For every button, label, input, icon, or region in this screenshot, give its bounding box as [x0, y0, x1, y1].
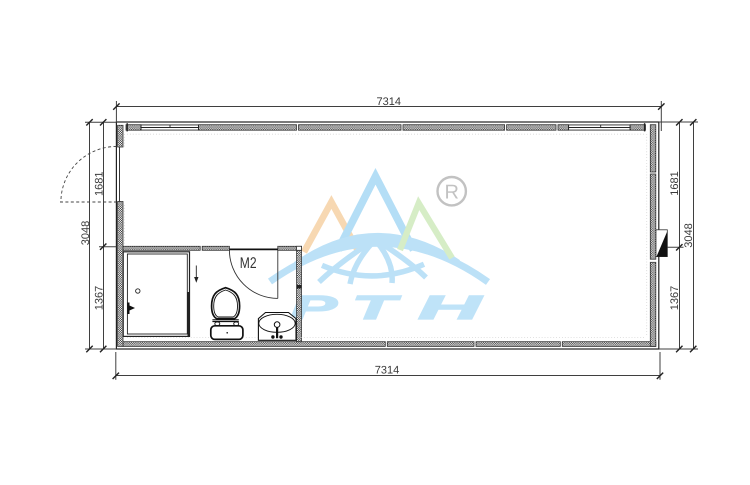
svg-text:1681: 1681 — [94, 172, 106, 196]
svg-text:3048: 3048 — [683, 223, 695, 247]
svg-text:R: R — [444, 181, 458, 203]
svg-text:7314: 7314 — [375, 365, 399, 377]
svg-text:7314: 7314 — [377, 96, 401, 108]
svg-text:1367: 1367 — [94, 286, 106, 310]
svg-text:T: T — [351, 290, 400, 327]
svg-text:H: H — [418, 290, 483, 327]
svg-text:3048: 3048 — [80, 221, 92, 245]
svg-text:M2: M2 — [240, 255, 257, 272]
svg-text:1367: 1367 — [669, 286, 681, 310]
svg-text:1681: 1681 — [669, 171, 681, 195]
